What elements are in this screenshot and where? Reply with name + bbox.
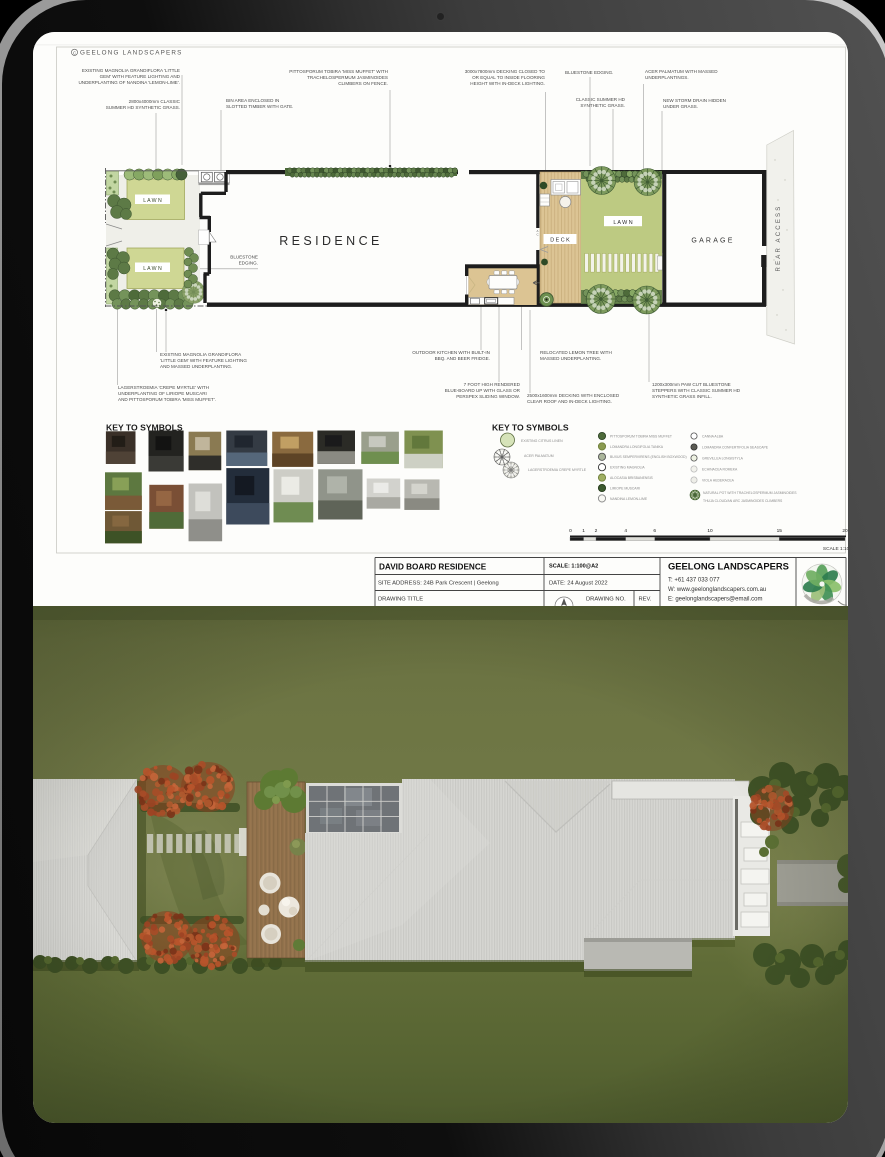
svg-text:DRAWING TITLE: DRAWING TITLE <box>378 597 423 603</box>
svg-text:OR EQUAL TO INSIDE FLOORING: OR EQUAL TO INSIDE FLOORING <box>472 75 545 80</box>
svg-text:2500x1600mm DECKING WITH ENCLO: 2500x1600mm DECKING WITH ENCLOSED <box>527 393 620 398</box>
svg-text:EXISTING MAGNOLIA: EXISTING MAGNOLIA <box>610 466 645 470</box>
svg-text:STEPPERS WITH CLASSIC SUMMER H: STEPPERS WITH CLASSIC SUMMER HD <box>652 388 741 393</box>
svg-text:4: 4 <box>624 528 627 534</box>
svg-text:BBQ. AND BEER FRIDGE.: BBQ. AND BEER FRIDGE. <box>435 356 490 361</box>
svg-text:EXISTING MAGNOLIA GRANDIFLORA: EXISTING MAGNOLIA GRANDIFLORA 'LITTLE <box>82 68 180 73</box>
svg-text:T: +61 437 033 077: T: +61 437 033 077 <box>668 578 720 584</box>
svg-text:UNDERPLANTING OF NANDINA 'LEMO: UNDERPLANTING OF NANDINA 'LEMON-LIME'. <box>78 80 180 85</box>
svg-text:TRACHELOSPERMUM JASMINOIDES: TRACHELOSPERMUM JASMINOIDES <box>307 75 388 80</box>
svg-text:BUXUS SEMPERVIRENS (ENGLISH BO: BUXUS SEMPERVIRENS (ENGLISH BOXWOOD) <box>610 455 687 459</box>
svg-text:0: 0 <box>569 528 572 534</box>
svg-text:15: 15 <box>777 528 783 534</box>
svg-text:GEELONG LANDSCAPERS: GEELONG LANDSCAPERS <box>668 561 789 572</box>
svg-text:2800x4000mm CLASSIC: 2800x4000mm CLASSIC <box>129 99 181 104</box>
svg-text:7 FOOT HIGH RENDERED: 7 FOOT HIGH RENDERED <box>464 382 521 387</box>
svg-text:BLUESTONE EDGING.: BLUESTONE EDGING. <box>565 70 613 75</box>
svg-text:C: C <box>73 50 76 55</box>
svg-text:CLASSIC SUMMER HD: CLASSIC SUMMER HD <box>576 97 626 102</box>
svg-text:PERSPEX SLIDING WINDOW.: PERSPEX SLIDING WINDOW. <box>456 394 520 399</box>
svg-text:RESIDENCE: RESIDENCE <box>279 234 383 248</box>
svg-text:PITTOSPORUM TOBIRA 'MISS MUFFE: PITTOSPORUM TOBIRA 'MISS MUFFET' WITH <box>289 69 388 74</box>
svg-text:ECHINACEA ROMEKA: ECHINACEA ROMEKA <box>702 467 738 471</box>
svg-text:ACER PALMATUM: ACER PALMATUM <box>524 454 554 458</box>
svg-text:L A W N: L A W N <box>143 198 162 204</box>
svg-text:UNDERPLANTING OF LIRIOPE MUSCA: UNDERPLANTING OF LIRIOPE MUSCARI <box>118 391 207 396</box>
svg-text:NANDINA LEMON-LIME: NANDINA LEMON-LIME <box>610 497 648 501</box>
svg-text:UNDERPLANTINGS.: UNDERPLANTINGS. <box>645 75 689 80</box>
svg-text:ACER PALMATUM WITH MASSED: ACER PALMATUM WITH MASSED <box>645 69 718 74</box>
svg-text:THUJA CLOUD/AN ARC JASMINOIDES: THUJA CLOUD/AN ARC JASMINOIDES CLIMBERS <box>703 499 783 503</box>
svg-text:LAGERSTROEMIA 'CREPE MYRTLE' W: LAGERSTROEMIA 'CREPE MYRTLE' WITH <box>118 385 209 390</box>
svg-text:SUMMER HD SYNTHETIC GRASS.: SUMMER HD SYNTHETIC GRASS. <box>106 105 180 110</box>
svg-text:UNDER GRASS.: UNDER GRASS. <box>663 104 698 109</box>
svg-text:3000x7800mm DECKING CLOSED TO: 3000x7800mm DECKING CLOSED TO <box>465 69 546 74</box>
svg-text:BLUE-BOARD UP WITH GLASS OR: BLUE-BOARD UP WITH GLASS OR <box>445 388 521 393</box>
svg-text:SCALE: 1:100@A2: SCALE: 1:100@A2 <box>549 564 598 570</box>
svg-text:NEW STORM DRAIN HIDDEN: NEW STORM DRAIN HIDDEN <box>663 98 726 103</box>
svg-text:E: geelonglandscapers@email.co: E: geelonglandscapers@email.com <box>668 597 762 603</box>
svg-text:L A W N: L A W N <box>613 220 632 226</box>
svg-text:LAGERSTROEMIA CREPE MYRTLE: LAGERSTROEMIA CREPE MYRTLE <box>528 468 587 472</box>
svg-text:2: 2 <box>595 528 598 534</box>
svg-text:SYNTHETIC GRASS.: SYNTHETIC GRASS. <box>580 103 625 108</box>
svg-text:W: www.geelonglandscapers.com.: W: www.geelonglandscapers.com.au <box>668 587 766 593</box>
svg-text:AND MASSED UNDERPLANTING.: AND MASSED UNDERPLANTING. <box>160 364 232 369</box>
svg-text:CLIMBERS ON FENCE.: CLIMBERS ON FENCE. <box>338 81 388 86</box>
svg-text:VIOLA HEDERACEA: VIOLA HEDERACEA <box>702 478 735 482</box>
svg-text:NATURAL POT WITH TRACHELOSPERM: NATURAL POT WITH TRACHELOSPERMUM JASMINO… <box>703 491 797 495</box>
svg-text:DATE: 24 August 2022: DATE: 24 August 2022 <box>549 581 608 587</box>
svg-text:SCALE 1:100: SCALE 1:100 <box>823 546 848 552</box>
svg-text:HEIGHT WITH IN-DECK LIGHTING.: HEIGHT WITH IN-DECK LIGHTING. <box>470 81 545 86</box>
svg-text:SITE ADDRESS: 24B Park Crescen: SITE ADDRESS: 24B Park Crescent | Geelon… <box>378 581 499 587</box>
svg-text:1: 1 <box>582 528 585 534</box>
svg-text:LIRIOPE MUSCARI: LIRIOPE MUSCARI <box>610 486 640 490</box>
svg-text:GEELONG LANDSCAPERS: GEELONG LANDSCAPERS <box>80 50 183 57</box>
svg-text:RELOCATED LEMON TREE WITH: RELOCATED LEMON TREE WITH <box>540 350 612 355</box>
svg-text:SYNTHETIC GRASS INFILL.: SYNTHETIC GRASS INFILL. <box>652 394 712 399</box>
svg-text:AND PITTOSPORUM TOBIRA 'MISS M: AND PITTOSPORUM TOBIRA 'MISS MUFFET'. <box>118 397 216 402</box>
svg-text:LOMANDRA LONGIFOLIA TANIKA: LOMANDRA LONGIFOLIA TANIKA <box>610 445 664 449</box>
svg-text:'LITTLE GEM' WITH FEATURE LIGH: 'LITTLE GEM' WITH FEATURE LIGHTING <box>160 358 247 363</box>
svg-text:BLUESTONE: BLUESTONE <box>230 255 258 260</box>
svg-text:ALOCASIA BRISBANENSIS: ALOCASIA BRISBANENSIS <box>610 476 654 480</box>
svg-text:OUTDOOR KITCHEN WITH BUILT-IN: OUTDOOR KITCHEN WITH BUILT-IN <box>412 350 490 355</box>
svg-text:KEY TO SYMBOLS: KEY TO SYMBOLS <box>492 423 569 433</box>
svg-text:CANNA ALBA: CANNA ALBA <box>702 434 724 438</box>
svg-text:DAVID BOARD RESIDENCE: DAVID BOARD RESIDENCE <box>379 563 487 572</box>
svg-text:REV.: REV. <box>639 597 652 603</box>
svg-text:EDGING.: EDGING. <box>239 261 258 266</box>
svg-text:EXISTING MAGNOLIA GRANDIFLORA: EXISTING MAGNOLIA GRANDIFLORA <box>160 352 242 357</box>
svg-text:BIN AREA ENCLOSED IN: BIN AREA ENCLOSED IN <box>226 98 279 103</box>
svg-text:GEM' WITH FEATURE LIGHTING AND: GEM' WITH FEATURE LIGHTING AND <box>100 74 181 79</box>
svg-text:6: 6 <box>653 528 656 534</box>
svg-text:REAR ACCESS: REAR ACCESS <box>776 205 782 272</box>
svg-text:D E C K: D E C K <box>550 238 570 244</box>
svg-text:SLOTTED TIMBER WITH GATE.: SLOTTED TIMBER WITH GATE. <box>226 104 293 109</box>
svg-text:20: 20 <box>842 528 848 534</box>
svg-text:MASSED UNDERPLANTING.: MASSED UNDERPLANTING. <box>540 356 601 361</box>
svg-text:LOMANDRA CONFERTIFOLIA SEASCAP: LOMANDRA CONFERTIFOLIA SEASCAPE <box>702 445 769 449</box>
svg-text:1200x300mm PAW CUT BLUESTONE: 1200x300mm PAW CUT BLUESTONE <box>652 382 731 387</box>
svg-text:10: 10 <box>707 528 713 534</box>
svg-text:CLEAR ROOF AND IN-DECK LIGHTIN: CLEAR ROOF AND IN-DECK LIGHTING. <box>527 399 612 404</box>
svg-text:EXISTING CITRUS LINEN: EXISTING CITRUS LINEN <box>521 439 563 443</box>
svg-text:DRAWING NO.: DRAWING NO. <box>586 597 626 603</box>
svg-text:GARAGE: GARAGE <box>691 238 734 245</box>
svg-text:L A W N: L A W N <box>143 266 162 272</box>
svg-text:PITTOSPORUM TOBIRA MISS MUFFET: PITTOSPORUM TOBIRA MISS MUFFET <box>610 434 672 438</box>
svg-text:GREVILLEA LONGISTYLA: GREVILLEA LONGISTYLA <box>702 456 744 460</box>
